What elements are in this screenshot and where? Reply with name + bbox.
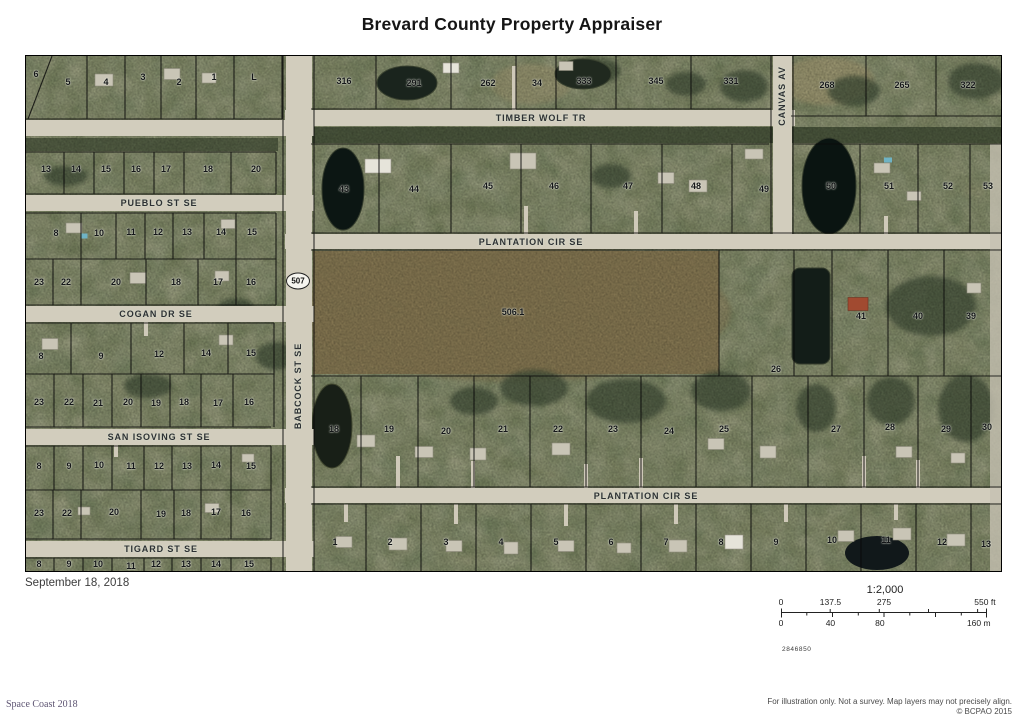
lot-number: 19: [156, 509, 166, 519]
lot-number: 10: [94, 460, 104, 470]
lot-number: 41: [856, 311, 866, 321]
lot-number: 8: [53, 228, 58, 238]
lot-number: 20: [441, 426, 451, 436]
lot-number: 18: [329, 424, 339, 434]
lot-number: 12: [153, 227, 163, 237]
disclaimer-line: For illustration only. Not a survey. Map…: [767, 697, 1012, 707]
map-canvas: TIMBER WOLF TRPUEBLO ST SEPLANTATION CIR…: [25, 55, 1002, 572]
scale-tick-label: 0: [779, 597, 784, 607]
lot-number: 19: [151, 398, 161, 408]
lot-number: 11: [126, 561, 136, 571]
lot-number: 23: [608, 424, 618, 434]
lot-number: 2: [176, 77, 181, 87]
lot-number: 13: [41, 164, 51, 174]
lot-number: 48: [691, 181, 701, 191]
lot-number: 9: [773, 537, 778, 547]
scale-tick-label: 550 ft: [974, 597, 995, 607]
lot-number: 18: [181, 508, 191, 518]
lot-number: 14: [211, 460, 221, 470]
lot-number: 13: [981, 539, 991, 549]
lot-number: 27: [831, 424, 841, 434]
lot-number: 21: [498, 424, 508, 434]
lot-number: 44: [409, 184, 419, 194]
lot-number: 8: [36, 559, 41, 569]
map-date: September 18, 2018: [25, 577, 129, 589]
lot-number: 17: [213, 398, 223, 408]
scale-tick-label: 0: [779, 618, 784, 628]
lot-number: 11: [126, 461, 136, 471]
lot-number: L: [251, 72, 257, 82]
lot-number: 24: [664, 426, 674, 436]
disclaimer: For illustration only. Not a survey. Map…: [767, 697, 1012, 717]
lot-number: 15: [244, 559, 254, 569]
lot-number: 16: [246, 277, 256, 287]
lot-number: 39: [966, 311, 976, 321]
lot-number: 1: [211, 72, 216, 82]
lot-number: 20: [109, 507, 119, 517]
street-label: BABCOCK ST SE: [293, 343, 303, 429]
street-label: PLANTATION CIR SE: [479, 237, 583, 247]
street-label: COGAN DR SE: [119, 309, 192, 319]
lot-number: 4: [498, 537, 503, 547]
lot-number: 12: [154, 461, 164, 471]
lot-number: 15: [246, 461, 256, 471]
lot-number: 3: [140, 72, 145, 82]
page-title: Brevard County Property Appraiser: [0, 14, 1024, 35]
lot-number: 21: [93, 398, 103, 408]
lot-number: 10: [827, 535, 837, 545]
lot-number: 316: [336, 76, 351, 86]
lot-number: 506.1: [502, 307, 525, 317]
lot-number: 9: [66, 461, 71, 471]
lot-number: 8: [38, 351, 43, 361]
lot-number: 10: [93, 559, 103, 569]
lot-number: 13: [181, 559, 191, 569]
lot-number: 11: [881, 535, 891, 545]
lot-number: 1: [332, 537, 337, 547]
lot-number: 22: [61, 277, 71, 287]
lot-number: 345: [648, 76, 663, 86]
lot-number: 333: [576, 76, 591, 86]
lot-number: 4: [103, 77, 108, 87]
street-label: CANVAS AV: [777, 66, 787, 125]
scale-ratio: 1:2,000: [779, 584, 991, 596]
lot-number: 40: [913, 311, 923, 321]
lot-number: 52: [943, 181, 953, 191]
street-label: TIMBER WOLF TR: [496, 113, 587, 123]
lot-number: 26: [771, 364, 781, 374]
lot-number: 16: [241, 508, 251, 518]
lot-number: 19: [384, 424, 394, 434]
lot-number: 16: [131, 164, 141, 174]
lot-number: 6: [33, 69, 38, 79]
lot-number: 14: [211, 559, 221, 569]
lot-number: 28: [885, 422, 895, 432]
lot-number: 17: [211, 507, 221, 517]
scale-tick-label: 40: [826, 618, 835, 628]
lot-number: 23: [34, 277, 44, 287]
lot-number: 268: [819, 80, 834, 90]
street-label: PLANTATION CIR SE: [594, 491, 698, 501]
lot-number: 15: [246, 348, 256, 358]
scale-bar-ticks: [781, 608, 987, 618]
lot-number: 8: [718, 537, 723, 547]
lot-number: 9: [66, 559, 71, 569]
page: Brevard County Property Appraiser: [0, 0, 1024, 725]
lot-number: 15: [247, 227, 257, 237]
lot-number: 262: [480, 78, 495, 88]
lot-number: 10: [94, 228, 104, 238]
lot-number: 291: [406, 78, 421, 88]
lot-number: 3: [443, 537, 448, 547]
lot-number: 16: [244, 397, 254, 407]
lot-number: 14: [201, 348, 211, 358]
lot-number: 51: [884, 181, 894, 191]
lot-number: 322: [960, 80, 975, 90]
lot-number: 18: [171, 277, 181, 287]
lot-number: 12: [151, 559, 161, 569]
route-507-shield: 507: [286, 273, 310, 290]
lot-number: 13: [182, 227, 192, 237]
map-label-layer: TIMBER WOLF TRPUEBLO ST SEPLANTATION CIR…: [26, 56, 1001, 571]
lot-number: 34: [532, 78, 542, 88]
lot-number: 22: [64, 397, 74, 407]
lot-number: 11: [126, 227, 136, 237]
lot-number: 14: [216, 227, 226, 237]
lot-number: 22: [553, 424, 563, 434]
lot-number: 18: [203, 164, 213, 174]
scale-meter-labels: 04080160 m: [781, 618, 987, 629]
lot-number: 45: [483, 181, 493, 191]
lot-number: 47: [623, 181, 633, 191]
lot-number: 25: [719, 424, 729, 434]
lot-number: 331: [723, 76, 738, 86]
lot-number: 265: [894, 80, 909, 90]
scale-bar: 1:2,000 0137.5275550 ft 04080160 m: [779, 584, 991, 629]
street-label: PUEBLO ST SE: [121, 198, 198, 208]
lot-number: 12: [154, 349, 164, 359]
lot-number: 30: [982, 422, 992, 432]
lot-number: 14: [71, 164, 81, 174]
scale-tick-label: 137.5: [820, 597, 841, 607]
lot-number: 23: [34, 397, 44, 407]
lot-number: 43: [339, 184, 349, 194]
lot-number: 12: [937, 537, 947, 547]
lot-number: 18: [179, 397, 189, 407]
lot-number: 6: [608, 537, 613, 547]
lot-number: 15: [101, 164, 111, 174]
lot-number: 53: [983, 181, 993, 191]
scale-feet-labels: 0137.5275550 ft: [781, 597, 987, 608]
map-number: 2846850: [782, 646, 812, 653]
lot-number: 20: [251, 164, 261, 174]
lot-number: 22: [62, 508, 72, 518]
lot-number: 9: [98, 351, 103, 361]
lot-number: 50: [826, 181, 836, 191]
lot-number: 20: [123, 397, 133, 407]
lot-number: 49: [759, 184, 769, 194]
lot-number: 17: [213, 277, 223, 287]
imagery-credit: Space Coast 2018: [6, 699, 78, 710]
lot-number: 8: [36, 461, 41, 471]
lot-number: 5: [65, 77, 70, 87]
street-label: SAN ISOVING ST SE: [108, 432, 211, 442]
lot-number: 13: [182, 461, 192, 471]
lot-number: 5: [553, 537, 558, 547]
scale-tick-label: 160 m: [967, 618, 991, 628]
copyright-line: © BCPAO 2015: [767, 707, 1012, 717]
lot-number: 46: [549, 181, 559, 191]
lot-number: 20: [111, 277, 121, 287]
lot-number: 2: [387, 537, 392, 547]
lot-number: 23: [34, 508, 44, 518]
lot-number: 7: [663, 537, 668, 547]
lot-number: 29: [941, 424, 951, 434]
scale-tick-label: 80: [875, 618, 884, 628]
scale-tick-label: 275: [877, 597, 891, 607]
lot-number: 17: [161, 164, 171, 174]
street-label: TIGARD ST SE: [124, 544, 198, 554]
